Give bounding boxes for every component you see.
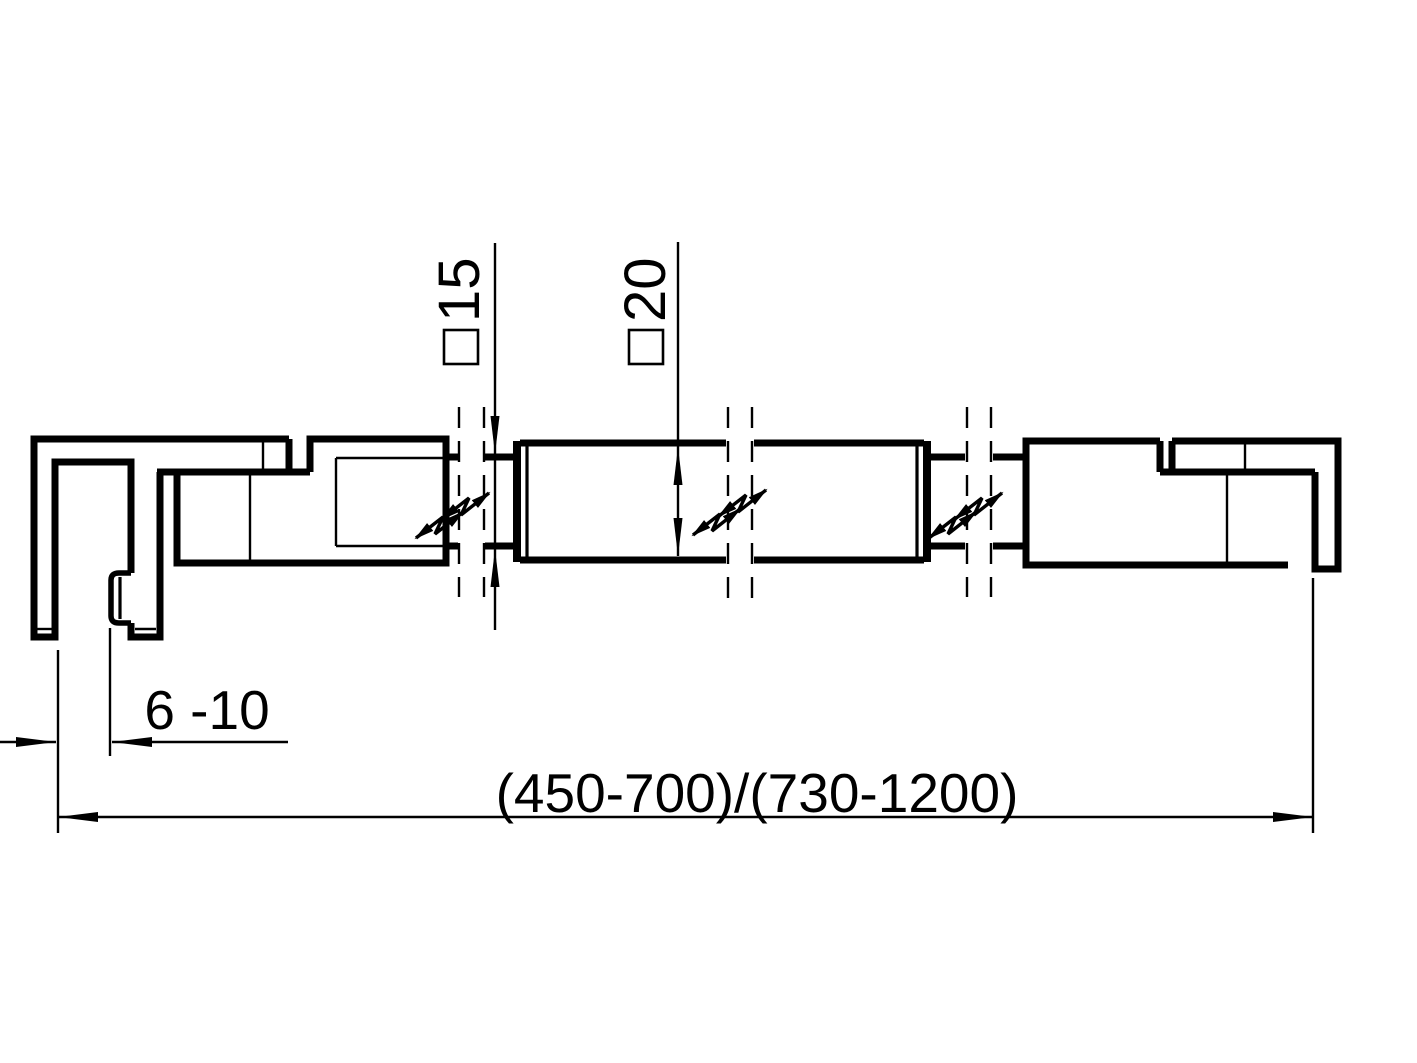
dimension-bar-20: 20 bbox=[613, 242, 683, 556]
length-dim-arrow-left bbox=[58, 812, 98, 822]
right-clamp-outline bbox=[1172, 441, 1338, 569]
bar-15-label: 15 bbox=[427, 257, 492, 322]
dimension-glass-thickness: 6 -10 bbox=[0, 628, 288, 833]
break-middle bbox=[693, 407, 766, 598]
bar-20-label: 20 bbox=[613, 257, 678, 322]
dim-15-arrow-up bbox=[491, 549, 500, 587]
stabilizer-bar-drawing: 15 20 6 -10 (450-700)/(730-1200) bbox=[0, 0, 1417, 1063]
square-section-icon-15 bbox=[444, 330, 478, 364]
break-right bbox=[929, 407, 1002, 597]
square-section-icon-20 bbox=[629, 330, 663, 364]
break-right-zigzag-2 bbox=[955, 493, 1002, 519]
technical-drawing-canvas: 15 20 6 -10 (450-700)/(730-1200) bbox=[0, 0, 1417, 1063]
break-left-zigzag-1 bbox=[416, 512, 463, 538]
dim-20-arrow-up bbox=[674, 447, 683, 485]
left-bar-housing bbox=[157, 439, 446, 563]
length-dim-arrow-right bbox=[1273, 812, 1313, 822]
overall-length-label: (450-700)/(730-1200) bbox=[496, 762, 1019, 824]
glass-thickness-label: 6 -10 bbox=[144, 679, 269, 741]
dim-20-arrow-down bbox=[674, 518, 683, 556]
glass-dim-arrow-left bbox=[16, 737, 56, 747]
break-middle-zigzag-1 bbox=[693, 509, 740, 535]
break-marks bbox=[416, 407, 1002, 598]
left-clamp-inner-leg bbox=[131, 472, 160, 637]
dim-15-arrow-down bbox=[491, 416, 500, 454]
break-right-zigzag-1 bbox=[929, 512, 976, 538]
break-middle-zigzag-2 bbox=[719, 490, 766, 516]
right-glass-clamp bbox=[1172, 441, 1338, 569]
